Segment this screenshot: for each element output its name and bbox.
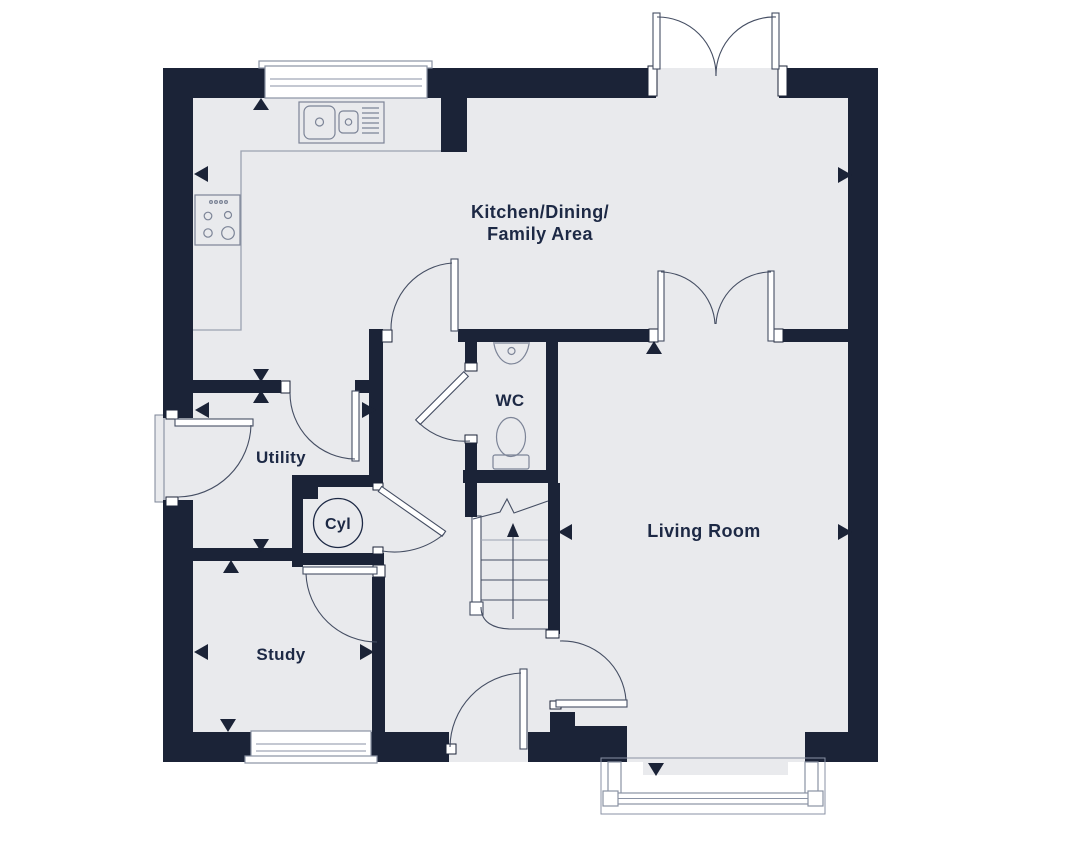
wall-segment (292, 475, 383, 487)
door-jamb (465, 435, 477, 443)
wall-segment (465, 483, 477, 517)
wall-segment (163, 500, 193, 762)
door-jamb (649, 329, 658, 342)
kitchen-window (259, 61, 432, 98)
wall-segment (775, 329, 850, 342)
door-jamb (373, 547, 383, 554)
door-jamb (778, 66, 787, 96)
wall-segment (575, 726, 627, 733)
door-jamb (382, 330, 392, 342)
kitchen-label-line1: Kitchen/Dining/ (471, 202, 609, 222)
door-jamb (648, 66, 657, 96)
floor-plan-drawing: Kitchen/Dining/ Family Area WC Utility C… (0, 0, 1080, 842)
wall-segment (557, 329, 657, 342)
door-jamb (465, 363, 477, 371)
wall-segment (163, 732, 251, 762)
door-jamb (166, 497, 178, 506)
wall-segment (441, 98, 467, 152)
door-jamb (446, 744, 456, 754)
bay-floor-extension (643, 762, 788, 775)
wall-segment (163, 98, 193, 418)
wall-segment (369, 329, 383, 476)
stair-stringer (472, 516, 481, 611)
cylinder-label: Cyl (325, 516, 351, 533)
wall-segment (465, 329, 477, 367)
wall-segment (292, 553, 384, 565)
wc-label: WC (495, 391, 524, 410)
wall-segment (779, 68, 878, 98)
wall-segment (463, 470, 557, 483)
wall-segment (193, 380, 281, 393)
living-room-label: Living Room (647, 521, 760, 541)
wall-segment (548, 483, 560, 634)
study-label: Study (256, 645, 305, 664)
wall-segment (371, 732, 449, 762)
door-jamb (166, 410, 178, 419)
wall-segment (546, 329, 558, 483)
wall-segment (163, 68, 265, 98)
wall-segment (193, 548, 301, 561)
study-window (245, 731, 377, 763)
utility-door-recess (155, 415, 164, 502)
wall-segment (550, 712, 575, 733)
floor-area (155, 68, 878, 775)
utility-label: Utility (256, 448, 306, 467)
door-jamb (774, 329, 783, 342)
kitchen-label-line2: Family Area (487, 224, 593, 244)
wall-segment (427, 68, 656, 98)
door-jamb (281, 381, 290, 393)
wall-segment (848, 98, 878, 762)
door-jamb (546, 630, 559, 638)
wall-segment (372, 577, 385, 732)
garden-french-doors (653, 13, 779, 76)
floor-plan: Kitchen/Dining/ Family Area WC Utility C… (0, 0, 1080, 842)
